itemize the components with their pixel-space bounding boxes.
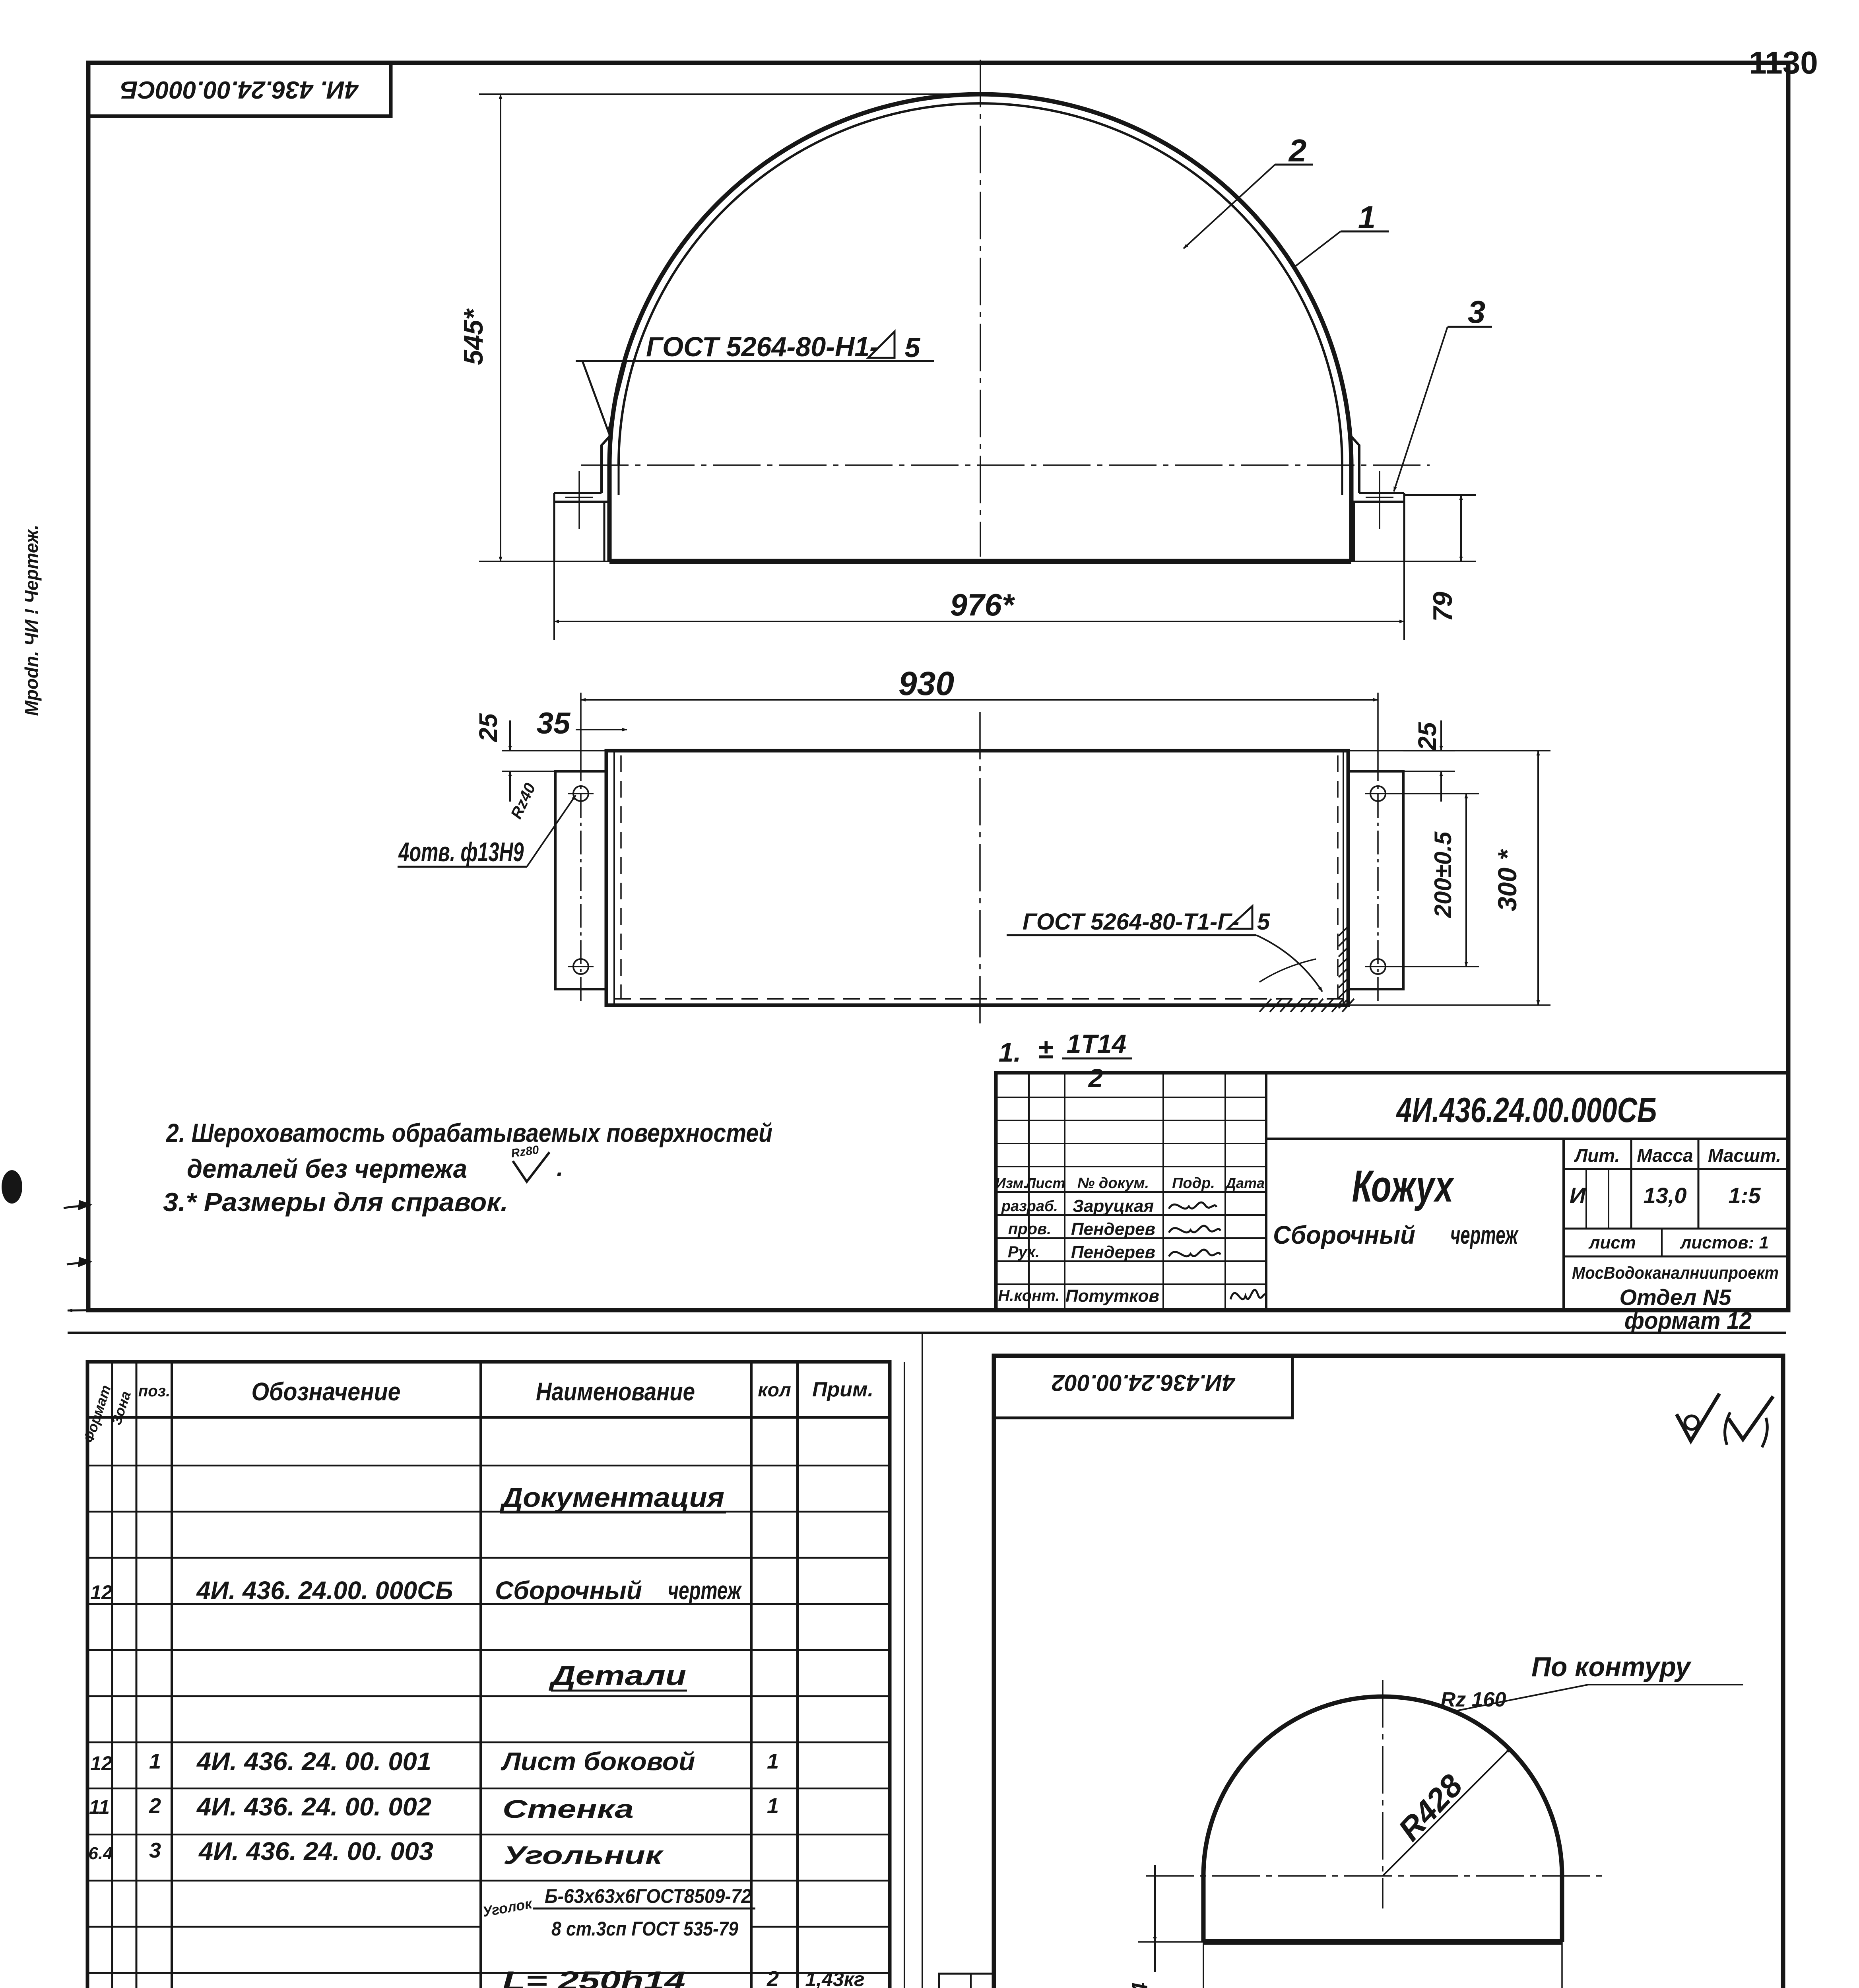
svg-text:1:5: 1:5 bbox=[1729, 1183, 1761, 1208]
svg-text:Заруцкая: Заруцкая bbox=[1073, 1196, 1154, 1216]
svg-text:Отдел N5: Отдел N5 bbox=[1619, 1285, 1731, 1310]
svg-text:разраб.: разраб. bbox=[1001, 1198, 1058, 1215]
svg-text:Угольник: Угольник bbox=[503, 1841, 664, 1870]
svg-text:4И. 436. 24.00. 000СБ: 4И. 436. 24.00. 000СБ bbox=[196, 1576, 453, 1605]
svg-text:поз.: поз. bbox=[138, 1382, 170, 1400]
svg-text:4И. 436. 24. 00. 001: 4И. 436. 24. 00. 001 bbox=[196, 1747, 431, 1776]
svg-text:11: 11 bbox=[89, 1796, 110, 1818]
svg-text:930: 930 bbox=[898, 665, 954, 702]
svg-text:кол: кол bbox=[758, 1380, 791, 1401]
svg-text:Прим.: Прим. bbox=[812, 1378, 873, 1401]
svg-text:2. Шероховатость обрабатываем: 2. Шероховатость обрабатываемых поверхно… bbox=[165, 1118, 772, 1147]
svg-text:.: . bbox=[557, 1155, 563, 1181]
svg-text:МосВодоканалниипроект: МосВодоканалниипроект bbox=[1572, 1263, 1779, 1283]
svg-text:Пендерев: Пендерев bbox=[1071, 1242, 1155, 1262]
svg-text:Сборочный: Сборочный bbox=[1273, 1221, 1415, 1249]
svg-text:1: 1 bbox=[767, 1794, 779, 1818]
svg-text:Детали: Детали bbox=[549, 1660, 686, 1691]
svg-text:4И. 436. 24. 00. 002: 4И. 436. 24. 00. 002 bbox=[196, 1792, 431, 1821]
svg-text:200±0.5: 200±0.5 bbox=[1430, 831, 1456, 918]
svg-text:чертеж: чертеж bbox=[1450, 1221, 1519, 1249]
svg-text:5: 5 bbox=[905, 332, 921, 363]
svg-text:35: 35 bbox=[537, 707, 571, 740]
svg-text:Б-63х63х6ГОСТ8509-72: Б-63х63х6ГОСТ8509-72 bbox=[545, 1885, 751, 1907]
svg-text:Сборочный: Сборочный bbox=[495, 1576, 642, 1605]
svg-text:Документация: Документация bbox=[500, 1482, 724, 1513]
svg-text:Дата: Дата bbox=[1224, 1175, 1265, 1191]
svg-text:25: 25 bbox=[474, 713, 503, 742]
svg-text:чертеж: чертеж bbox=[668, 1576, 742, 1605]
svg-text:5: 5 bbox=[1257, 909, 1270, 935]
svg-text:Подр.: Подр. bbox=[1172, 1175, 1215, 1192]
svg-text:13,0: 13,0 bbox=[1644, 1183, 1687, 1208]
svg-text:1: 1 bbox=[1358, 200, 1376, 235]
svg-text:1: 1 bbox=[767, 1749, 779, 1773]
svg-text:И: И bbox=[1570, 1183, 1586, 1208]
svg-text:2: 2 bbox=[1088, 1063, 1103, 1093]
svg-text:2: 2 bbox=[1288, 133, 1307, 168]
svg-text:Обозначение: Обозначение bbox=[252, 1377, 401, 1406]
svg-text:545*: 545* bbox=[458, 308, 489, 365]
svg-text:±: ± bbox=[1038, 1033, 1054, 1064]
svg-text:Лист боковой: Лист боковой bbox=[501, 1747, 695, 1776]
svg-text:25: 25 bbox=[1413, 722, 1442, 751]
svg-text:лист: лист bbox=[1588, 1233, 1636, 1252]
svg-text:115±0.4: 115±0.4 bbox=[1127, 1982, 1152, 1988]
svg-text:4И. 436. 24. 00. 003: 4И. 436. 24. 00. 003 bbox=[198, 1837, 433, 1866]
svg-text:856: 856 bbox=[1359, 1984, 1414, 1988]
svg-text:Стенка: Стенка bbox=[503, 1795, 634, 1823]
svg-text:Масшт.: Масшт. bbox=[1708, 1145, 1781, 1166]
svg-text:Кожух: Кожух bbox=[1352, 1161, 1455, 1211]
svg-text:1Т14: 1Т14 bbox=[1067, 1029, 1126, 1058]
svg-text:пров.: пров. bbox=[1008, 1220, 1052, 1238]
svg-text:4И.436.24.00.002: 4И.436.24.00.002 bbox=[1052, 1370, 1236, 1396]
svg-text:Наименование: Наименование bbox=[536, 1377, 695, 1406]
svg-text:L= 250h14: L= 250h14 bbox=[503, 1966, 685, 1988]
svg-text:1,43кг: 1,43кг bbox=[805, 1968, 864, 1988]
svg-text:6.4: 6.4 bbox=[88, 1844, 113, 1863]
svg-text:12: 12 bbox=[90, 1752, 113, 1774]
svg-text:4отв. ф13Н9: 4отв. ф13Н9 bbox=[398, 837, 524, 867]
svg-text:Мpodn. ЧИ ! Чертеж.: Мpodn. ЧИ ! Чертеж. bbox=[21, 525, 42, 716]
svg-text:ГОСТ 5264-80-Т1-Г-: ГОСТ 5264-80-Т1-Г- bbox=[1023, 909, 1239, 935]
svg-text:3: 3 bbox=[149, 1839, 161, 1862]
svg-text:4И.436.24.00.000СБ: 4И.436.24.00.000СБ bbox=[1396, 1090, 1657, 1130]
svg-text:По контуру: По контуру bbox=[1531, 1651, 1692, 1682]
svg-text:8 ст.3сп ГОСТ 535-79: 8 ст.3сп ГОСТ 535-79 bbox=[551, 1918, 738, 1940]
svg-text:Изм.: Изм. bbox=[995, 1175, 1027, 1191]
svg-text:3: 3 bbox=[1468, 294, 1486, 330]
svg-text:2: 2 bbox=[149, 1794, 161, 1818]
svg-text:976*: 976* bbox=[950, 587, 1015, 622]
svg-text:Н.конт.: Н.конт. bbox=[998, 1287, 1060, 1305]
svg-text:Потутков: Потутков bbox=[1065, 1286, 1159, 1306]
svg-text:12: 12 bbox=[90, 1581, 113, 1604]
svg-text:Масса: Масса bbox=[1637, 1145, 1693, 1166]
svg-text:1.: 1. bbox=[999, 1037, 1021, 1068]
svg-text:Rz 160: Rz 160 bbox=[1441, 1688, 1506, 1711]
svg-text:листов: 1: листов: 1 bbox=[1680, 1233, 1769, 1252]
svg-text:ГОСТ 5264-80-Н1-: ГОСТ 5264-80-Н1- bbox=[646, 331, 879, 362]
svg-text:3.* Размеры для справок.: 3.* Размеры для справок. bbox=[163, 1187, 508, 1217]
svg-text:деталей без чертежа: деталей без чертежа bbox=[187, 1154, 467, 1183]
svg-text:1: 1 bbox=[149, 1749, 161, 1773]
svg-text:79: 79 bbox=[1428, 592, 1458, 622]
svg-text:300 *: 300 * bbox=[1492, 849, 1522, 911]
svg-text:№ докум.: № докум. bbox=[1077, 1175, 1149, 1192]
svg-text:Лист: Лист bbox=[1025, 1175, 1065, 1191]
svg-text:Лит.: Лит. bbox=[1574, 1145, 1620, 1166]
svg-text:4И. 436.24.00.000СБ: 4И. 436.24.00.000СБ bbox=[120, 76, 359, 103]
svg-text:Рук.: Рук. bbox=[1008, 1243, 1040, 1261]
svg-text:2: 2 bbox=[766, 1967, 779, 1988]
svg-text:формат 12: формат 12 bbox=[1624, 1307, 1752, 1334]
svg-text:1130: 1130 bbox=[1749, 45, 1818, 80]
svg-text:Пендерев: Пендерев bbox=[1071, 1219, 1155, 1239]
